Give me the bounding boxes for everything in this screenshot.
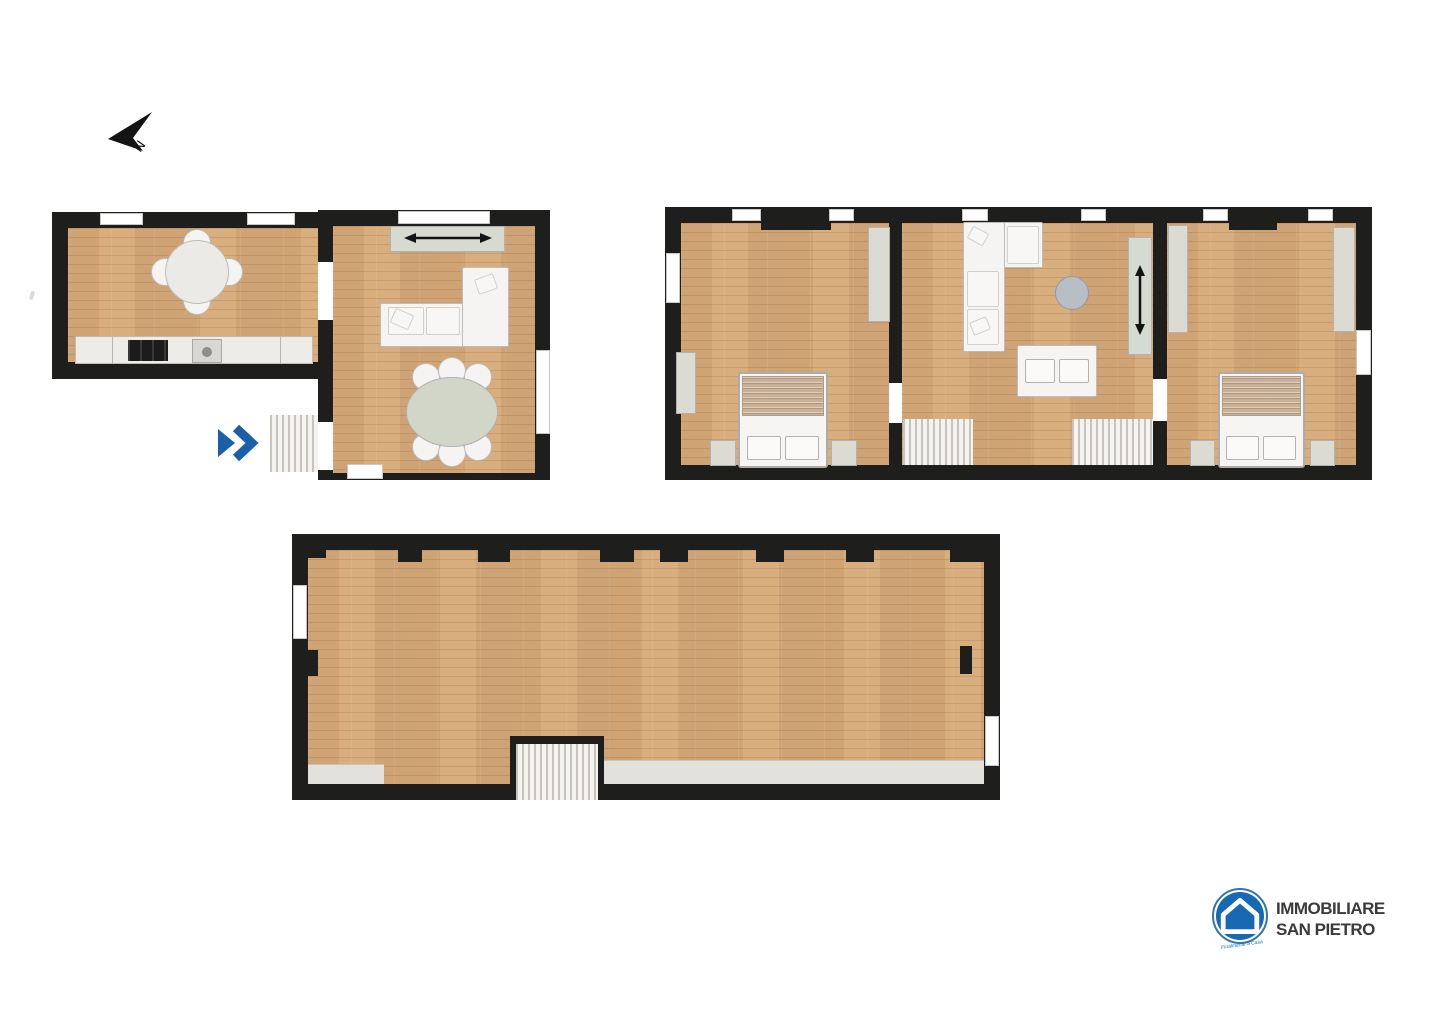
sliding-door-arrow-icon	[1133, 265, 1147, 335]
wardrobe	[676, 352, 696, 414]
wall-notch	[478, 546, 510, 562]
sink	[192, 339, 222, 363]
cooktop	[128, 340, 168, 361]
logo-circle	[1216, 892, 1264, 940]
loveseat-cushion	[1059, 359, 1089, 383]
window	[985, 716, 999, 766]
low-ceiling-strip	[600, 760, 984, 784]
floor-plan-page: N	[0, 0, 1440, 1018]
door-opening	[1153, 379, 1167, 421]
stair-wall	[510, 736, 604, 744]
loveseat-cushion	[1025, 359, 1055, 383]
staircase	[1072, 419, 1153, 465]
counter-divider	[280, 336, 281, 364]
house-icon	[1216, 892, 1264, 940]
entrance-steps	[270, 415, 318, 472]
wall-notch	[761, 223, 831, 230]
window	[293, 585, 307, 639]
oval-dining-table	[406, 377, 498, 447]
window	[732, 209, 761, 221]
wall-notch	[1229, 223, 1277, 230]
window	[1203, 209, 1228, 221]
bed-blanket	[742, 376, 824, 416]
first-floor-plan	[665, 207, 1372, 480]
logo-line2: SAN PIETRO	[1276, 919, 1385, 940]
staircase	[516, 744, 598, 800]
wardrobe	[1333, 227, 1355, 332]
wall-notch	[950, 550, 984, 562]
nightstand	[710, 440, 736, 466]
double-chevron-right-icon	[216, 422, 260, 464]
window	[1308, 209, 1333, 221]
stair-wall	[598, 744, 604, 800]
bed-pillow	[1226, 436, 1259, 460]
sink-basin	[202, 347, 212, 357]
nightstand	[1310, 440, 1335, 466]
bed-pillow	[1263, 436, 1296, 460]
attic-floor-plan	[292, 534, 1000, 800]
staircase	[903, 419, 973, 465]
double-bed	[1218, 372, 1305, 468]
wall-notch	[600, 546, 634, 562]
window	[247, 213, 295, 225]
tall-wardrobe	[868, 227, 890, 322]
sofa-cushion	[967, 271, 999, 307]
counter-divider	[112, 336, 113, 364]
logo-line1: IMMOBILIARE	[1276, 898, 1385, 919]
wall-notch	[308, 650, 318, 676]
bed-pillow	[747, 436, 781, 460]
wardrobe	[1168, 225, 1188, 333]
wall-notch	[660, 546, 688, 562]
wall-notch	[846, 546, 874, 562]
bed-blanket	[1222, 376, 1301, 416]
window	[829, 209, 854, 221]
bed-pillow	[785, 436, 819, 460]
sliding-door-arrow-icon	[404, 230, 492, 246]
compass: N	[108, 112, 178, 168]
door-opening	[889, 383, 902, 423]
window	[398, 211, 490, 224]
low-ceiling-strip	[308, 764, 384, 784]
artifact-mark	[29, 291, 35, 301]
wall-notch	[756, 546, 784, 562]
sofa-cushion	[1007, 226, 1039, 264]
door-opening	[318, 262, 333, 320]
round-dining-table	[165, 240, 229, 304]
agency-logo: Finalmente a Casa IMMOBILIARE SAN PIETRO	[1212, 886, 1387, 956]
window	[100, 213, 143, 225]
round-side-table	[1055, 276, 1089, 310]
window	[1081, 209, 1106, 221]
wall-notch	[960, 646, 972, 674]
window	[347, 464, 383, 479]
double-bed	[738, 372, 828, 468]
entrance-door-opening	[318, 422, 333, 470]
window	[536, 350, 550, 434]
sofa-cushion	[426, 307, 460, 335]
logo-ring	[1212, 888, 1268, 944]
attic-floor	[308, 550, 984, 784]
window	[666, 253, 680, 303]
nightstand	[831, 440, 857, 466]
wall-notch	[308, 550, 326, 558]
window	[1356, 330, 1371, 375]
wall-notch	[398, 546, 422, 562]
ground-floor-plan	[52, 210, 552, 482]
window	[962, 209, 988, 221]
nightstand	[1190, 440, 1215, 466]
logo-wordmark: IMMOBILIARE SAN PIETRO	[1276, 898, 1385, 940]
